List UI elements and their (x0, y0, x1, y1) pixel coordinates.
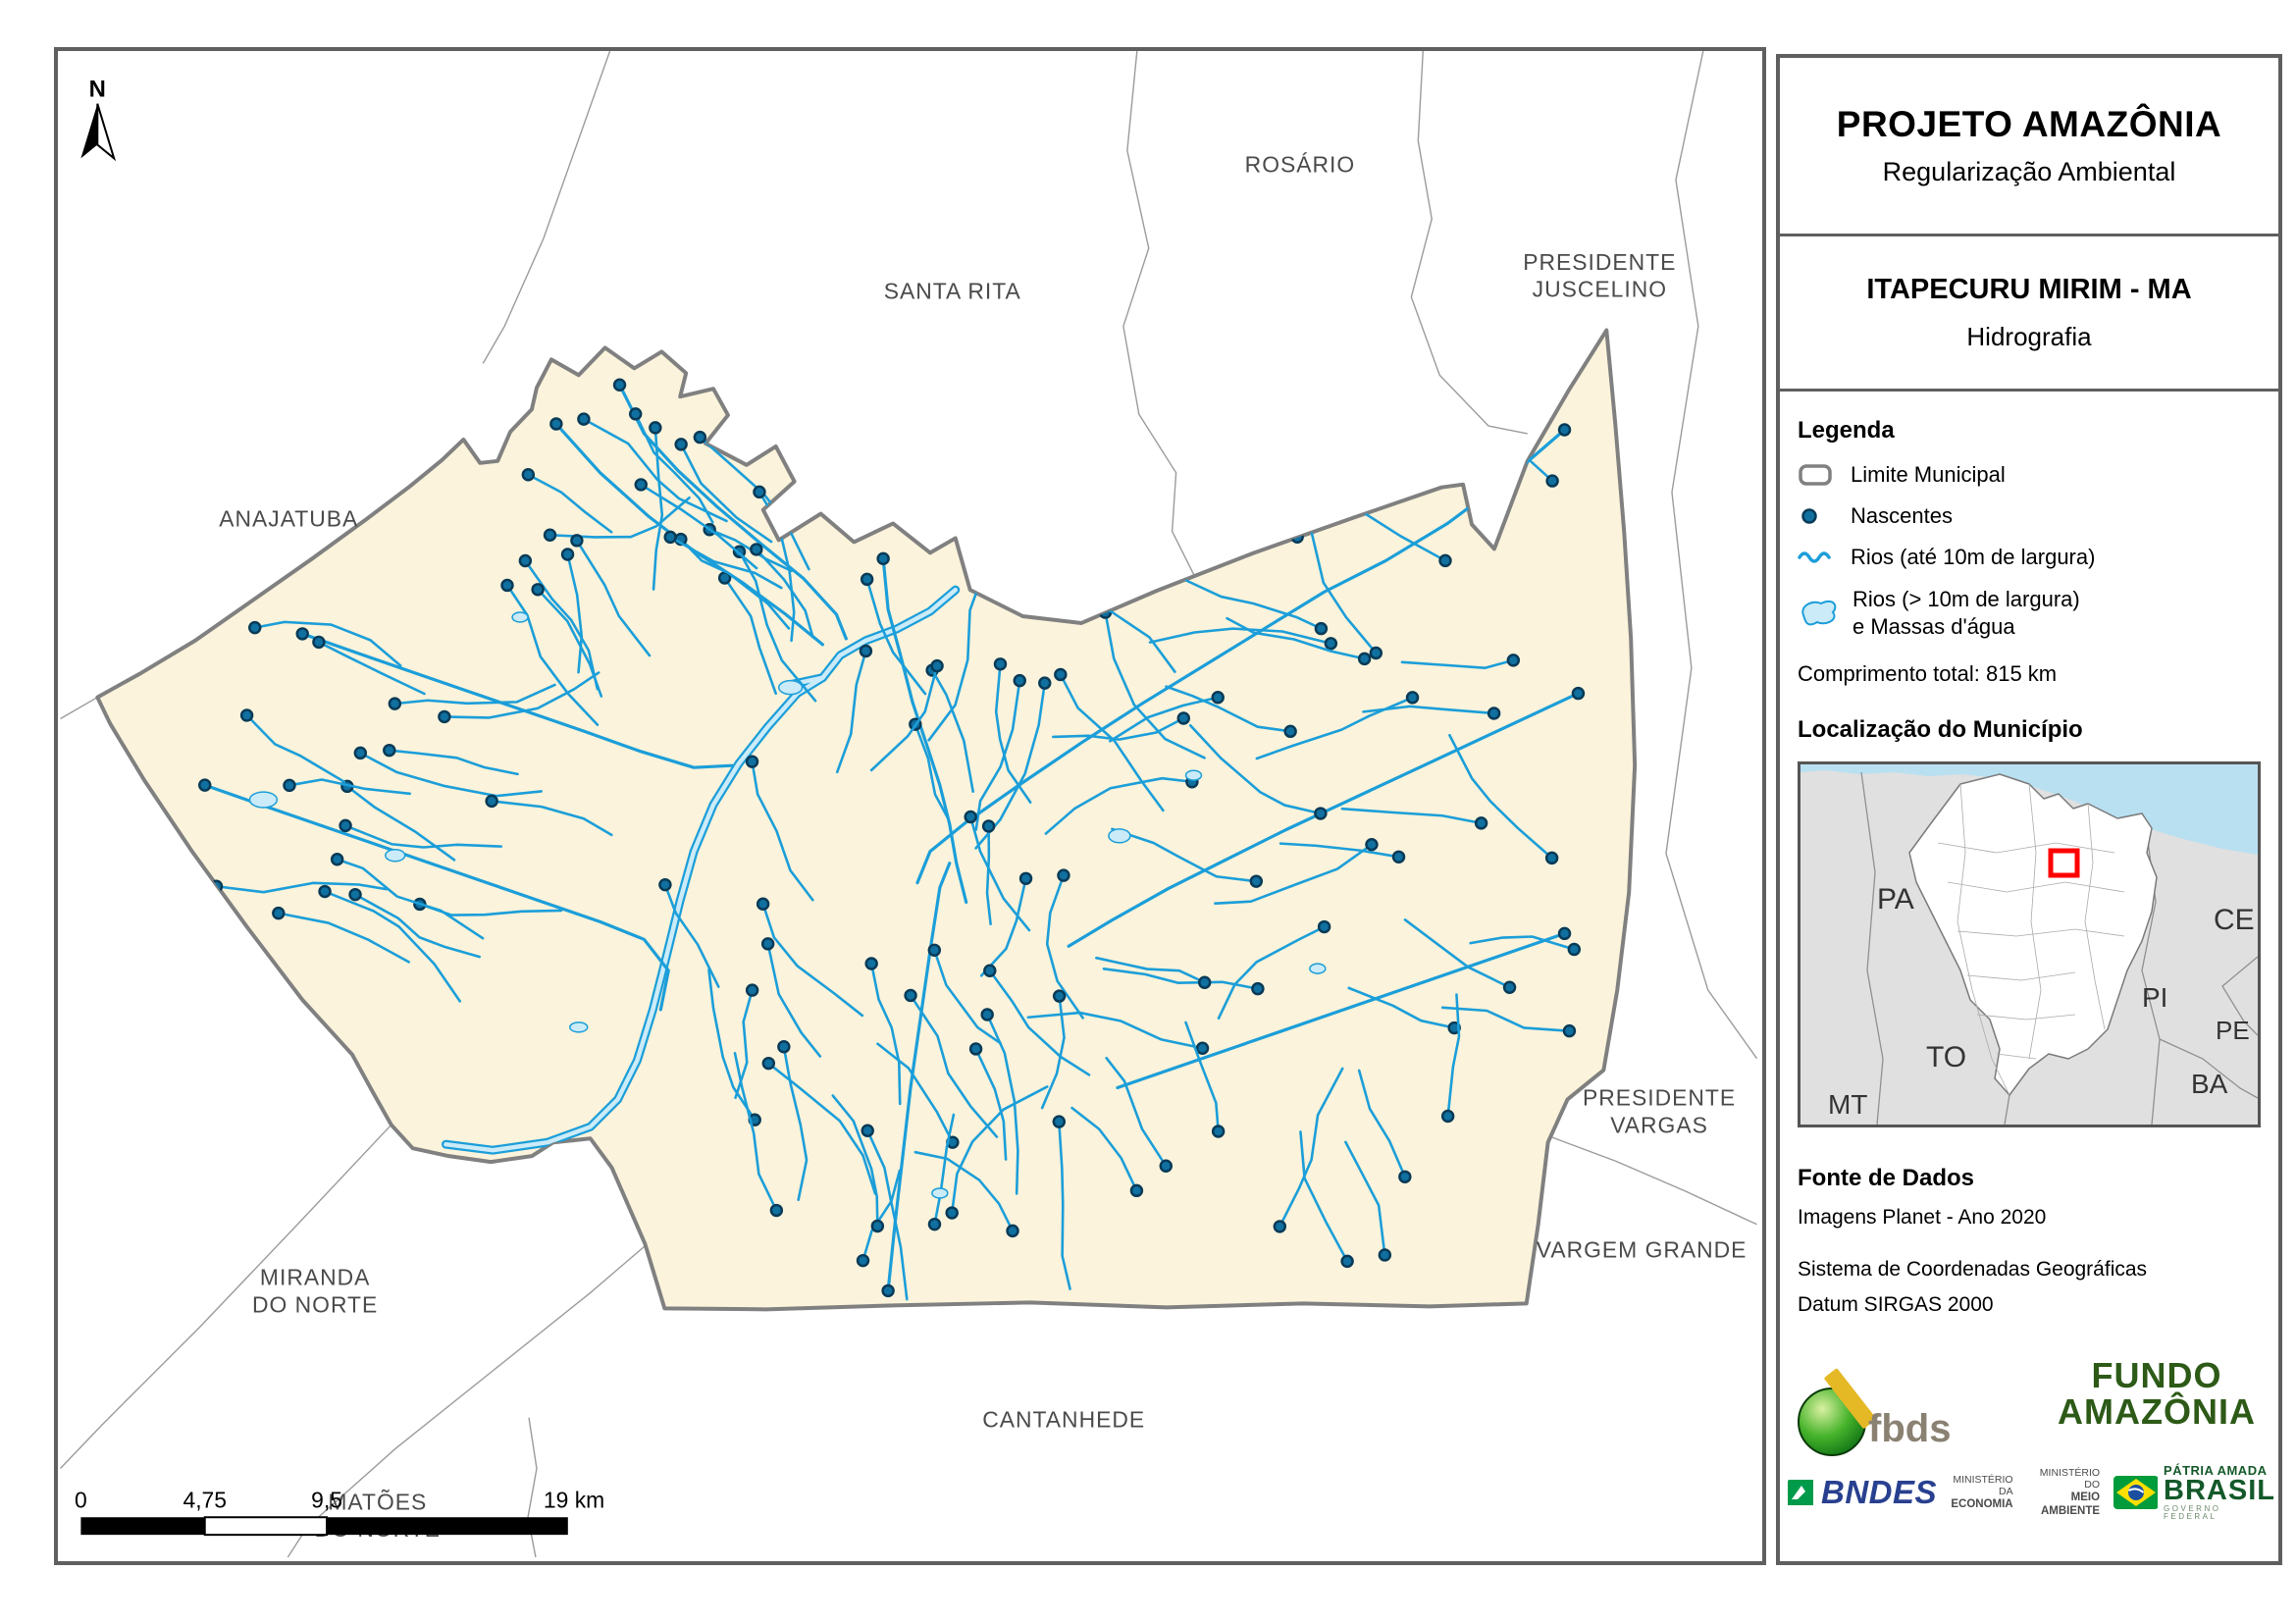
nascente-dot (1559, 425, 1570, 436)
water-body (570, 1022, 588, 1032)
nascente-dot (320, 886, 331, 897)
river-line (1187, 523, 1297, 537)
state-label: PE (2216, 1016, 2250, 1045)
source-line: Imagens Planet - Ano 2020 (1798, 1204, 2261, 1231)
water-body (386, 850, 405, 862)
logos-block: fbds FUNDO AMAZÔNIA BNDES MINISTÉRIO DA … (1780, 1348, 2280, 1510)
nascente-dot (778, 1041, 789, 1052)
nascente-dot (1564, 1025, 1575, 1036)
nascente-dot (384, 745, 394, 756)
nascente-dot (878, 553, 889, 564)
water-body-icon (1798, 594, 1841, 633)
nascente-dot (545, 530, 555, 541)
water-body (932, 1188, 948, 1198)
nascente-dot (659, 879, 670, 890)
river-line (1249, 326, 1378, 411)
nascente-dot (1437, 461, 1448, 472)
ministerio-meio-ambiente: MINISTÉRIO DO MEIO AMBIENTE (2027, 1467, 2100, 1519)
legend-item-rios: Rios (até 10m de largura) (1798, 545, 2261, 570)
source-heading: Fonte de Dados (1798, 1163, 2261, 1194)
nascente-dot (747, 757, 757, 767)
data-source: Fonte de Dados Imagens Planet - Ano 2020… (1798, 1163, 2261, 1319)
nascente-dot (520, 555, 531, 566)
bndes-icon (1786, 1478, 1815, 1507)
map-label: PRESIDENTEVARGAS (1583, 1084, 1736, 1137)
nascente-dot (757, 899, 768, 910)
north-arrow-icon (97, 104, 114, 159)
nascente-dot (297, 628, 308, 639)
scalebar-segment (205, 1517, 327, 1535)
nascente-dot (1399, 1172, 1410, 1182)
nascente-dot (390, 699, 400, 709)
map-label: CANTANHEDE (982, 1407, 1145, 1433)
nascente-dot (1488, 708, 1499, 719)
nascente-dot (751, 544, 761, 554)
nascente-dot (861, 574, 872, 585)
neighbor-boundary (1123, 51, 1197, 580)
nascente-dot (650, 422, 660, 433)
source-line: Datum SIRGAS 2000 (1798, 1291, 2261, 1319)
nascente-dot (1547, 476, 1558, 487)
panel-content: Legenda Limite Municipal Nascentes Rios … (1780, 392, 2278, 1536)
water-body (512, 612, 528, 622)
nascente-dot (1039, 678, 1050, 689)
nascente-dot (285, 780, 295, 791)
legend-item-label: Rios (até 10m de largura) (1851, 545, 2095, 570)
nascente-dot (1393, 852, 1404, 863)
map-viewport: ROSÁRIOPRESIDENTEJUSCELINOSANTA RITAANAJ… (54, 47, 1766, 1565)
map-label: PRESIDENTEJUSCELINO (1523, 249, 1676, 302)
state-label: MT (1828, 1089, 1867, 1120)
nascente-dot (439, 711, 449, 722)
nascente-dot (1285, 473, 1296, 484)
nascente-dot (754, 487, 764, 497)
nascente-dot (1213, 1126, 1224, 1137)
nascente-dot (1504, 982, 1515, 993)
river-line (1297, 430, 1452, 458)
nascente-dot (550, 419, 561, 430)
river-line (1359, 416, 1506, 431)
nascente-dot (762, 938, 773, 949)
state-label: CE (2214, 904, 2255, 936)
ministerio-economia: MINISTÉRIO DA ECONOMIA (1951, 1474, 2013, 1512)
nascente-dot (984, 966, 995, 976)
state-locator-map: PACEPIPETOBAMT (1798, 761, 2261, 1127)
project-title-box: PROJETO AMAZÔNIA Regularização Ambiental (1780, 58, 2278, 236)
nascente-dot (1354, 472, 1365, 483)
nascente-dot (1178, 713, 1189, 724)
neighbor-boundary (528, 1418, 537, 1557)
nascente-dot (1285, 726, 1296, 737)
map-label: ROSÁRIO (1245, 151, 1355, 177)
water-body (1186, 770, 1202, 780)
river-line (1452, 286, 1529, 433)
river-line (1218, 348, 1292, 483)
nascente-dot (858, 1255, 868, 1266)
nascente-dot (1058, 870, 1069, 881)
nascente-dot (1440, 555, 1451, 566)
municipal-boundary-icon (1798, 463, 1839, 487)
scalebar-segment (80, 1517, 204, 1535)
legend-heading: Legenda (1798, 417, 2261, 445)
nascente-dot (1407, 692, 1418, 703)
nascente-dot (1072, 571, 1083, 582)
nascente-dot (241, 709, 252, 720)
nascente-dot (983, 820, 994, 831)
nascente-dot (578, 414, 589, 425)
nascente-dot (1559, 928, 1570, 939)
scalebar-tick: 0 (75, 1487, 87, 1512)
neighbor-boundary (1550, 1136, 1757, 1225)
nascente-dot (1326, 638, 1336, 649)
nascente-dot (695, 432, 705, 443)
nascente-dot (1366, 839, 1377, 850)
spring-dot-icon (1798, 505, 1839, 527)
nascente-dot (1371, 648, 1382, 658)
nascente-dot (947, 1208, 958, 1219)
brazil-flag-icon (2113, 1476, 2158, 1509)
nascente-dot (355, 748, 366, 759)
legend-item-nascentes: Nascentes (1798, 503, 2261, 529)
nascente-dot (1508, 654, 1519, 665)
nascente-dot (995, 658, 1006, 669)
nascente-dot (1319, 921, 1330, 932)
scalebar-tick: 19 km (544, 1487, 604, 1512)
nascente-dot (862, 1126, 873, 1136)
water-body (249, 792, 277, 808)
neighbor-boundary (1666, 51, 1757, 1059)
nascente-dot (562, 550, 573, 560)
nascente-dot (523, 469, 534, 480)
nascente-dot (970, 1043, 981, 1054)
state-label: TO (1926, 1041, 1966, 1073)
map-label: MIRANDADO NORTE (252, 1264, 378, 1317)
neighbor-boundary (61, 698, 98, 719)
nascente-dot (883, 1285, 894, 1296)
nascente-dot (1447, 452, 1458, 463)
north-label: N (89, 77, 106, 103)
map-label: VARGEM GRANDE (1537, 1237, 1748, 1263)
fbds-wordmark: fbds (1868, 1407, 1951, 1451)
nascente-dot (1199, 977, 1210, 988)
nascente-dot (350, 889, 361, 900)
nascente-dot (1315, 809, 1326, 819)
nascente-dot (332, 854, 342, 864)
bndes-logo: BNDES (1786, 1474, 1937, 1511)
water-body (779, 681, 803, 695)
legend-item-label: Limite Municipal (1851, 462, 2006, 488)
project-title: PROJETO AMAZÔNIA (1780, 104, 2278, 145)
neighbor-boundary (483, 51, 609, 363)
nascente-dot (929, 945, 940, 956)
state-label: PI (2142, 982, 2167, 1013)
governo-federal-logo: PÁTRIA AMADA BRASIL GOVERNO FEDERAL (2113, 1464, 2276, 1521)
water-body (1310, 964, 1326, 973)
nascente-dot (636, 479, 647, 490)
legend-item-massas: Rios (> 10m de largura) e Massas d'água (1798, 586, 2261, 640)
state-label: BA (2191, 1069, 2228, 1099)
scalebar-tick: 9,5 (311, 1487, 342, 1512)
legend-item-limite: Limite Municipal (1798, 462, 2261, 488)
nascente-dot (1008, 1226, 1018, 1236)
nascente-dot (340, 820, 351, 831)
nascente-dot (929, 1219, 940, 1230)
patria-amada-brasil: PÁTRIA AMADA BRASIL GOVERNO FEDERAL (2164, 1464, 2276, 1521)
nascente-dot (747, 985, 757, 996)
nascente-dot (1015, 675, 1025, 686)
location-heading: Localização do Município (1798, 716, 2261, 744)
nascente-dot (273, 908, 284, 918)
nascente-dot (1373, 405, 1383, 416)
nascente-dot (932, 660, 943, 671)
nascente-dot (1054, 1117, 1065, 1127)
nascente-dot (199, 780, 210, 791)
government-logos-row: BNDES MINISTÉRIO DA ECONOMIA MINISTÉRIO … (1786, 1464, 2276, 1521)
info-panel: PROJETO AMAZÔNIA Regularização Ambiental… (1776, 54, 2282, 1565)
river-line (1298, 381, 1360, 477)
river-line-icon (1798, 548, 1839, 567)
municipality-name: ITAPECURU MIRIM - MA (1780, 274, 2278, 306)
nascente-dot (1286, 478, 1297, 489)
fbds-logo: fbds (1798, 1366, 1964, 1459)
nascente-dot (1020, 873, 1031, 884)
state-label: PA (1877, 883, 1914, 916)
nascente-dot (763, 1058, 774, 1069)
river-line (1365, 368, 1474, 404)
nascente-dot (1252, 983, 1263, 994)
map-theme: Hidrografia (1780, 322, 2278, 352)
nascente-dot (872, 1221, 883, 1231)
nascente-dot (676, 439, 687, 449)
river-line (1158, 433, 1290, 479)
nascente-dot (1380, 1249, 1390, 1260)
nascente-dot (1476, 817, 1487, 828)
nascente-dot (1251, 876, 1262, 887)
nascente-dot (982, 1010, 993, 1021)
nascente-dot (1213, 400, 1224, 411)
nascente-dot (630, 408, 641, 419)
source-line: Sistema de Coordenadas Geográficas (1798, 1256, 2261, 1283)
hydrography-map: ROSÁRIOPRESIDENTEJUSCELINOSANTA RITAANAJ… (58, 51, 1762, 1561)
fundo-amazonia-logo: FUNDO AMAZÔNIA (2039, 1358, 2274, 1430)
nascente-dot (965, 811, 976, 822)
nascente-dot (1275, 1221, 1285, 1231)
nascente-dot (571, 535, 582, 546)
nascente-dot (614, 380, 625, 391)
nascente-dot (249, 622, 260, 633)
nascente-dot (1161, 1161, 1172, 1172)
nascente-dot (1546, 853, 1557, 864)
nascente-dot (1131, 1185, 1142, 1196)
nascente-dot (974, 579, 985, 590)
nascente-dot (1359, 654, 1370, 664)
locator-map-canvas: PACEPIPETOBAMT (1800, 764, 2258, 1125)
nascente-dot (1442, 1111, 1453, 1122)
map-label: ANAJATUBA (219, 505, 358, 531)
nascente-dot (665, 532, 676, 543)
north-arrow-icon (80, 104, 97, 159)
nascente-dot (1054, 991, 1065, 1002)
river-line (1341, 376, 1442, 466)
scalebar-tick: 4,75 (183, 1487, 227, 1512)
nascente-dot (1342, 1256, 1353, 1267)
nascente-dot (771, 1205, 782, 1216)
project-subtitle: Regularização Ambiental (1780, 157, 2278, 187)
legend-item-label: Rios (> 10m de largura) e Massas d'água (1852, 586, 2080, 640)
river-line (1143, 271, 1219, 405)
nascente-dot (861, 646, 871, 656)
scalebar-segment (327, 1517, 568, 1535)
nascente-dot (1316, 623, 1327, 634)
nascente-dot (533, 584, 544, 595)
nascente-dot (1213, 692, 1224, 703)
nascente-dot (487, 796, 497, 807)
nascente-dot (866, 959, 877, 969)
nascente-dot (313, 637, 324, 648)
nascente-dot (502, 580, 513, 591)
municipality-box: ITAPECURU MIRIM - MA Hidrografia (1780, 236, 2278, 392)
legend-item-label: Nascentes (1851, 503, 1953, 529)
neighbor-boundary (1411, 51, 1527, 434)
nascente-dot (906, 990, 916, 1001)
nascente-dot (1573, 688, 1584, 699)
nascente-dot (1569, 944, 1580, 955)
nascente-dot (1055, 669, 1066, 680)
map-label: SANTA RITA (884, 279, 1021, 304)
nascente-dot (1197, 1043, 1208, 1054)
total-length: Comprimento total: 815 km (1798, 661, 2261, 687)
water-body (1109, 829, 1130, 843)
